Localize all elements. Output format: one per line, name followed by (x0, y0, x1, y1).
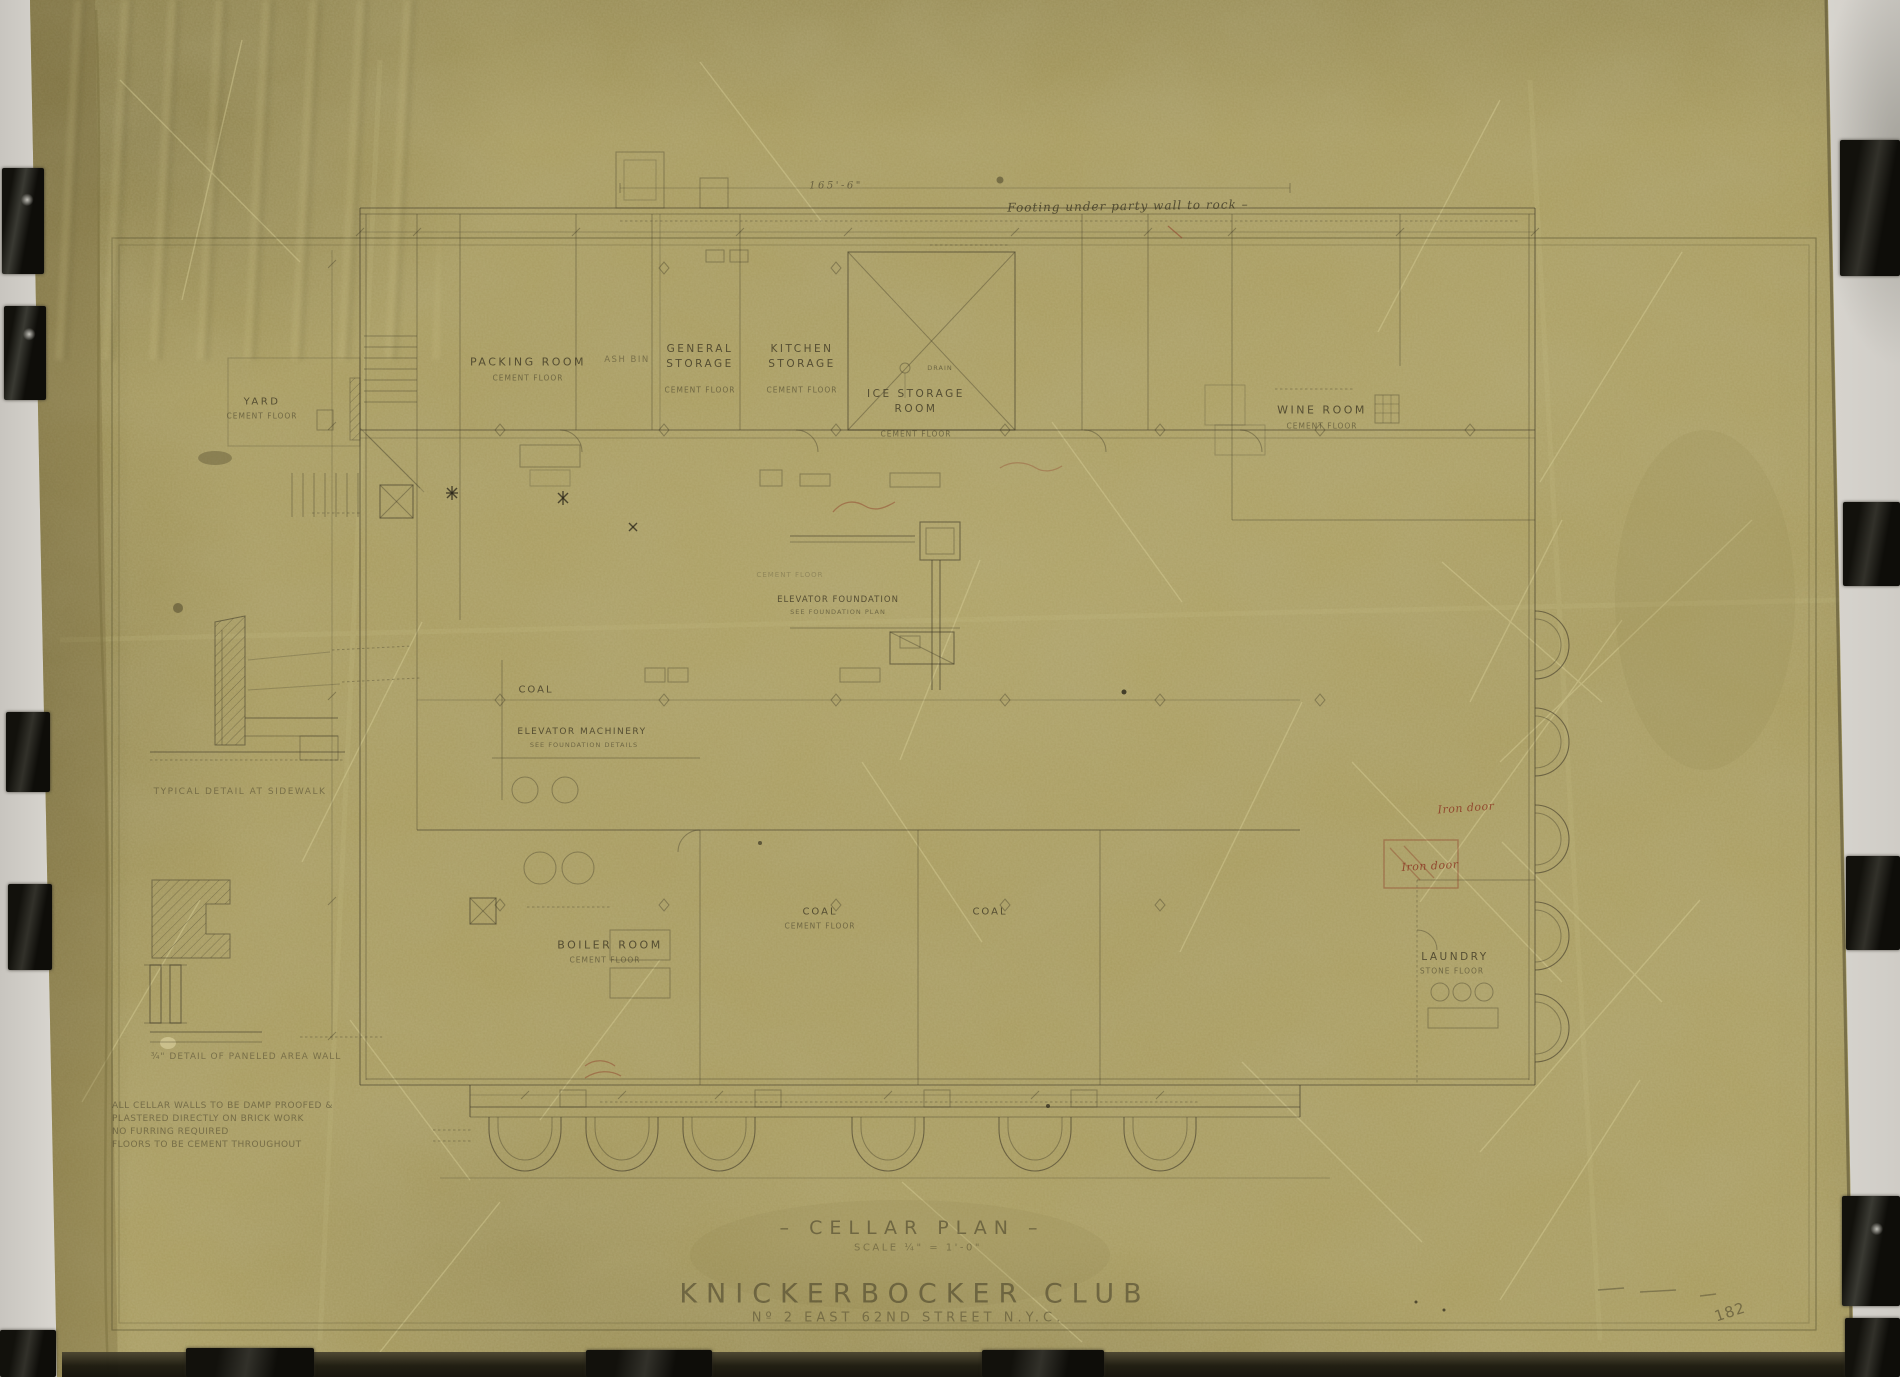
tape-tab (1840, 140, 1900, 276)
drawing-scale: SCALE ¼" = 1'-0" (854, 1243, 982, 1254)
detail-caption-area-wall: ¾" DETAIL OF PANELED AREA WALL (151, 1052, 342, 1062)
room-floor-wine-room: CEMENT FLOOR (1286, 422, 1357, 431)
tape-tab (1845, 1318, 1900, 1377)
ink-specks (446, 486, 1716, 1312)
tape-tab (4, 306, 46, 400)
general-note-line: NO FURRING REQUIRED (112, 1126, 333, 1139)
overall-dimension: 165'-6" (809, 181, 863, 192)
tape-tab (1843, 502, 1900, 586)
project-address: Nº 2 EAST 62ND STREET N.Y.C. (752, 1311, 1064, 1326)
floor-note-general-cellar: CEMENT FLOOR (756, 571, 823, 579)
room-label-boiler-room: BOILER ROOM (557, 939, 662, 952)
general-note-line: ALL CELLAR WALLS TO BE DAMP PROOFED & (112, 1100, 333, 1113)
tape-tab (0, 1330, 56, 1377)
room-floor-laundry: STONE FLOOR (1420, 967, 1484, 976)
drawing-title: – CELLAR PLAN – (780, 1217, 1045, 1239)
drain-label: DRAIN (927, 364, 952, 372)
room-label-general-storage: GENERAL STORAGE (653, 342, 747, 372)
right-bow-bays (1535, 611, 1569, 1062)
room-floor-elevator-foundation: SEE FOUNDATION PLAN (790, 608, 886, 616)
room-label-coal-b: COAL (802, 907, 837, 918)
tape-tab (6, 712, 50, 792)
room-label-laundry: LAUNDRY (1421, 951, 1488, 963)
room-label-wine-room: WINE ROOM (1277, 404, 1367, 417)
room-floor-ice-storage-room: CEMENT FLOOR (880, 430, 951, 439)
room-label-yard: YARD (244, 397, 281, 408)
room-label-coal-a: COAL (518, 685, 553, 696)
room-floor-elevator-machinery: SEE FOUNDATION DETAILS (530, 741, 638, 749)
partitions (360, 214, 1535, 1085)
room-label-elevator-machinery: ELEVATOR MACHINERY (517, 727, 646, 737)
room-label-packing-room: PACKING ROOM (470, 356, 586, 369)
detail-caption-sidewalk: TYPICAL DETAIL AT SIDEWALK (154, 787, 327, 797)
room-label-kitchen-storage: KITCHEN STORAGE (755, 342, 849, 372)
tape-tab (586, 1350, 712, 1377)
tape-tab (186, 1348, 314, 1377)
room-floor-yard: CEMENT FLOOR (226, 412, 297, 421)
tape-tab (2, 168, 44, 274)
room-label-coal-c: COAL (972, 907, 1007, 918)
general-note-line: PLASTERED DIRECTLY ON BRICK WORK (112, 1113, 333, 1126)
tape-tab (982, 1350, 1104, 1377)
tape-tab (8, 884, 52, 970)
general-notes: ALL CELLAR WALLS TO BE DAMP PROOFED & PL… (112, 1100, 333, 1152)
room-floor-general-storage: CEMENT FLOOR (664, 386, 735, 395)
general-note-line: FLOORS TO BE CEMENT THROUGHOUT (112, 1139, 333, 1152)
room-floor-boiler-room: CEMENT FLOOR (569, 956, 640, 965)
room-label-ice-storage-room: ICE STORAGE ROOM (861, 387, 971, 417)
sheet-bottom-edge (62, 1352, 1856, 1377)
stairs-and-equipment (228, 152, 1498, 1028)
room-floor-coal-b: CEMENT FLOOR (784, 922, 855, 931)
detail-area-wall (144, 880, 382, 1042)
project-name: KNICKERBOCKER CLUB (679, 1279, 1150, 1310)
plan-drawing: .w{stroke:rgba(60,54,38,.58);fill:none;s… (0, 0, 1900, 1377)
dimension-lines (312, 183, 1539, 1141)
tape-tab (1842, 1196, 1900, 1306)
photo-backdrop: .w{stroke:rgba(60,54,38,.58);fill:none;s… (0, 0, 1900, 1377)
room-floor-kitchen-storage: CEMENT FLOOR (766, 386, 837, 395)
tape-tab (1846, 856, 1900, 950)
room-label-elevator-foundation: ELEVATOR FOUNDATION (777, 595, 899, 605)
room-label-ash-bin: ASH BIN (604, 355, 650, 365)
room-floor-packing-room: CEMENT FLOOR (492, 374, 563, 383)
detail-sidewalk (150, 616, 420, 760)
